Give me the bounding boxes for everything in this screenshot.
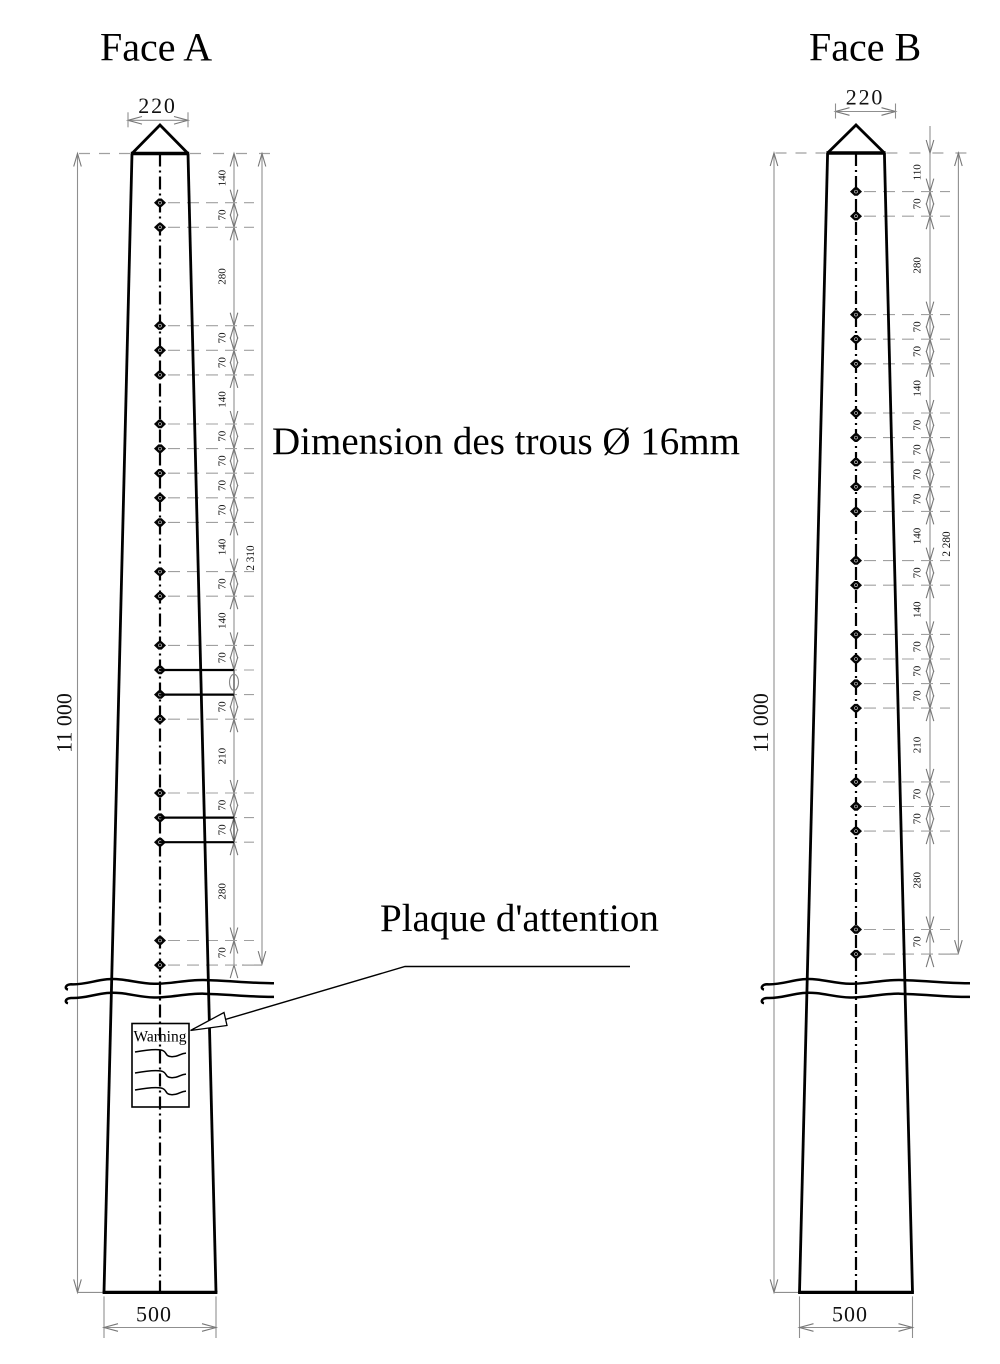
svg-text:140: 140 bbox=[912, 527, 924, 544]
svg-text:70: 70 bbox=[217, 701, 229, 713]
svg-text:70: 70 bbox=[912, 690, 924, 702]
svg-text:Face A: Face A bbox=[100, 25, 212, 70]
svg-text:70: 70 bbox=[217, 652, 229, 664]
svg-text:70: 70 bbox=[217, 799, 229, 811]
svg-text:220: 220 bbox=[846, 85, 884, 110]
svg-text:140: 140 bbox=[217, 538, 229, 555]
svg-text:500: 500 bbox=[136, 1302, 172, 1327]
svg-text:70: 70 bbox=[912, 641, 924, 653]
svg-text:70: 70 bbox=[217, 455, 229, 467]
svg-text:70: 70 bbox=[217, 504, 229, 515]
svg-text:210: 210 bbox=[217, 747, 229, 764]
svg-text:70: 70 bbox=[912, 813, 924, 825]
svg-text:11 000: 11 000 bbox=[748, 693, 773, 753]
svg-text:140: 140 bbox=[217, 391, 229, 408]
svg-text:70: 70 bbox=[217, 209, 229, 221]
svg-text:70: 70 bbox=[912, 321, 924, 333]
svg-text:70: 70 bbox=[912, 567, 924, 579]
svg-text:140: 140 bbox=[217, 612, 229, 629]
svg-text:280: 280 bbox=[217, 268, 229, 285]
svg-text:70: 70 bbox=[217, 332, 229, 344]
svg-text:70: 70 bbox=[912, 444, 924, 456]
svg-text:70: 70 bbox=[217, 947, 229, 959]
svg-text:70: 70 bbox=[217, 357, 229, 369]
svg-text:70: 70 bbox=[912, 788, 924, 800]
svg-text:Dimension des trous Ø 16mm: Dimension des trous Ø 16mm bbox=[272, 420, 740, 463]
svg-text:140: 140 bbox=[912, 380, 924, 397]
svg-text:70: 70 bbox=[912, 198, 924, 210]
svg-text:110: 110 bbox=[912, 164, 924, 181]
svg-text:280: 280 bbox=[912, 872, 924, 889]
svg-text:70: 70 bbox=[912, 936, 924, 948]
svg-text:280: 280 bbox=[217, 883, 229, 900]
svg-text:2 280: 2 280 bbox=[941, 531, 953, 557]
svg-text:70: 70 bbox=[912, 469, 924, 481]
svg-text:70: 70 bbox=[217, 578, 229, 590]
svg-text:70: 70 bbox=[912, 419, 924, 431]
svg-text:Warning: Warning bbox=[134, 1029, 187, 1046]
svg-text:11 000: 11 000 bbox=[51, 693, 76, 753]
svg-text:70: 70 bbox=[912, 493, 924, 505]
svg-text:210: 210 bbox=[912, 736, 924, 753]
svg-text:70: 70 bbox=[217, 480, 229, 492]
svg-text:140: 140 bbox=[217, 169, 229, 186]
svg-text:220: 220 bbox=[138, 93, 176, 118]
svg-text:2 310: 2 310 bbox=[245, 545, 257, 571]
svg-text:500: 500 bbox=[832, 1302, 868, 1327]
svg-text:70: 70 bbox=[912, 665, 924, 677]
svg-text:70: 70 bbox=[217, 430, 229, 442]
svg-text:280: 280 bbox=[912, 257, 924, 274]
svg-text:Face B: Face B bbox=[809, 25, 921, 70]
svg-text:140: 140 bbox=[912, 601, 924, 618]
svg-text:70: 70 bbox=[217, 824, 229, 836]
svg-text:70: 70 bbox=[912, 346, 924, 358]
svg-text:Plaque d'attention: Plaque d'attention bbox=[380, 897, 659, 940]
